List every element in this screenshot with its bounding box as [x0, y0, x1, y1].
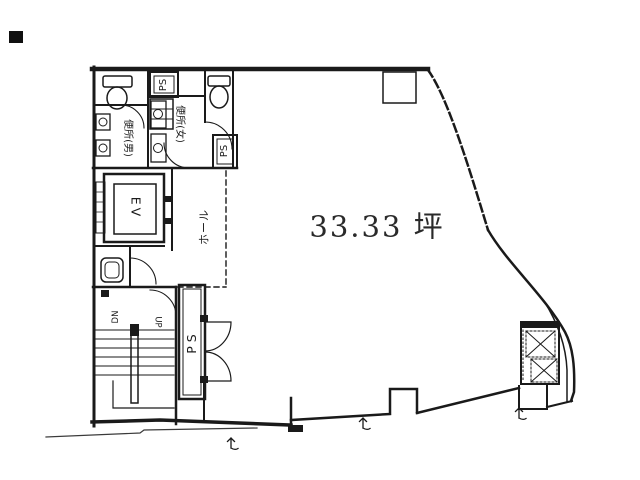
room-label-ps-mid: PS: [220, 145, 230, 157]
stairs-down-label: DN: [112, 311, 121, 324]
double-door-leaf: [205, 352, 231, 381]
outer-walls: [92, 67, 574, 432]
area-label: 33.33 坪: [309, 213, 444, 242]
rooftop-equipment-box: [383, 72, 416, 103]
hatched-shaft-block: [521, 322, 559, 384]
floor-plan-page: 33.33 坪 便所(男) 便所(女) EV ホール PS PS PS DN U…: [0, 0, 640, 480]
door-jamb: [164, 218, 173, 224]
stair-rail: [131, 327, 138, 403]
elevator-area: [94, 168, 173, 287]
door-arc: [164, 143, 189, 168]
double-door-leaf: [205, 322, 231, 351]
stairs-up-label: UP: [153, 316, 162, 327]
staircase: [93, 287, 176, 424]
urinal: [96, 114, 110, 130]
toilet-bowl: [210, 86, 228, 108]
door-jamb: [164, 196, 173, 202]
toilet-tank: [103, 76, 132, 87]
room-label-ps-shaft: PS: [186, 330, 199, 353]
door-arc: [130, 258, 156, 284]
door-jamb: [200, 315, 208, 322]
urinal: [96, 140, 110, 156]
room-label-hall: ホール: [199, 209, 210, 245]
ground-line: [46, 428, 257, 437]
door-jamb: [200, 376, 208, 383]
stair-treads: [95, 330, 174, 375]
scan-mark: [9, 31, 23, 43]
toilet-tank: [208, 76, 230, 86]
room-label-elevator: EV: [129, 197, 142, 219]
door-arc: [150, 290, 176, 316]
room-label-toilet-men: 便所(男): [122, 119, 132, 157]
room-label-toilet-women: 便所(女): [174, 105, 184, 143]
room-label-ps-top: PS: [159, 79, 169, 91]
